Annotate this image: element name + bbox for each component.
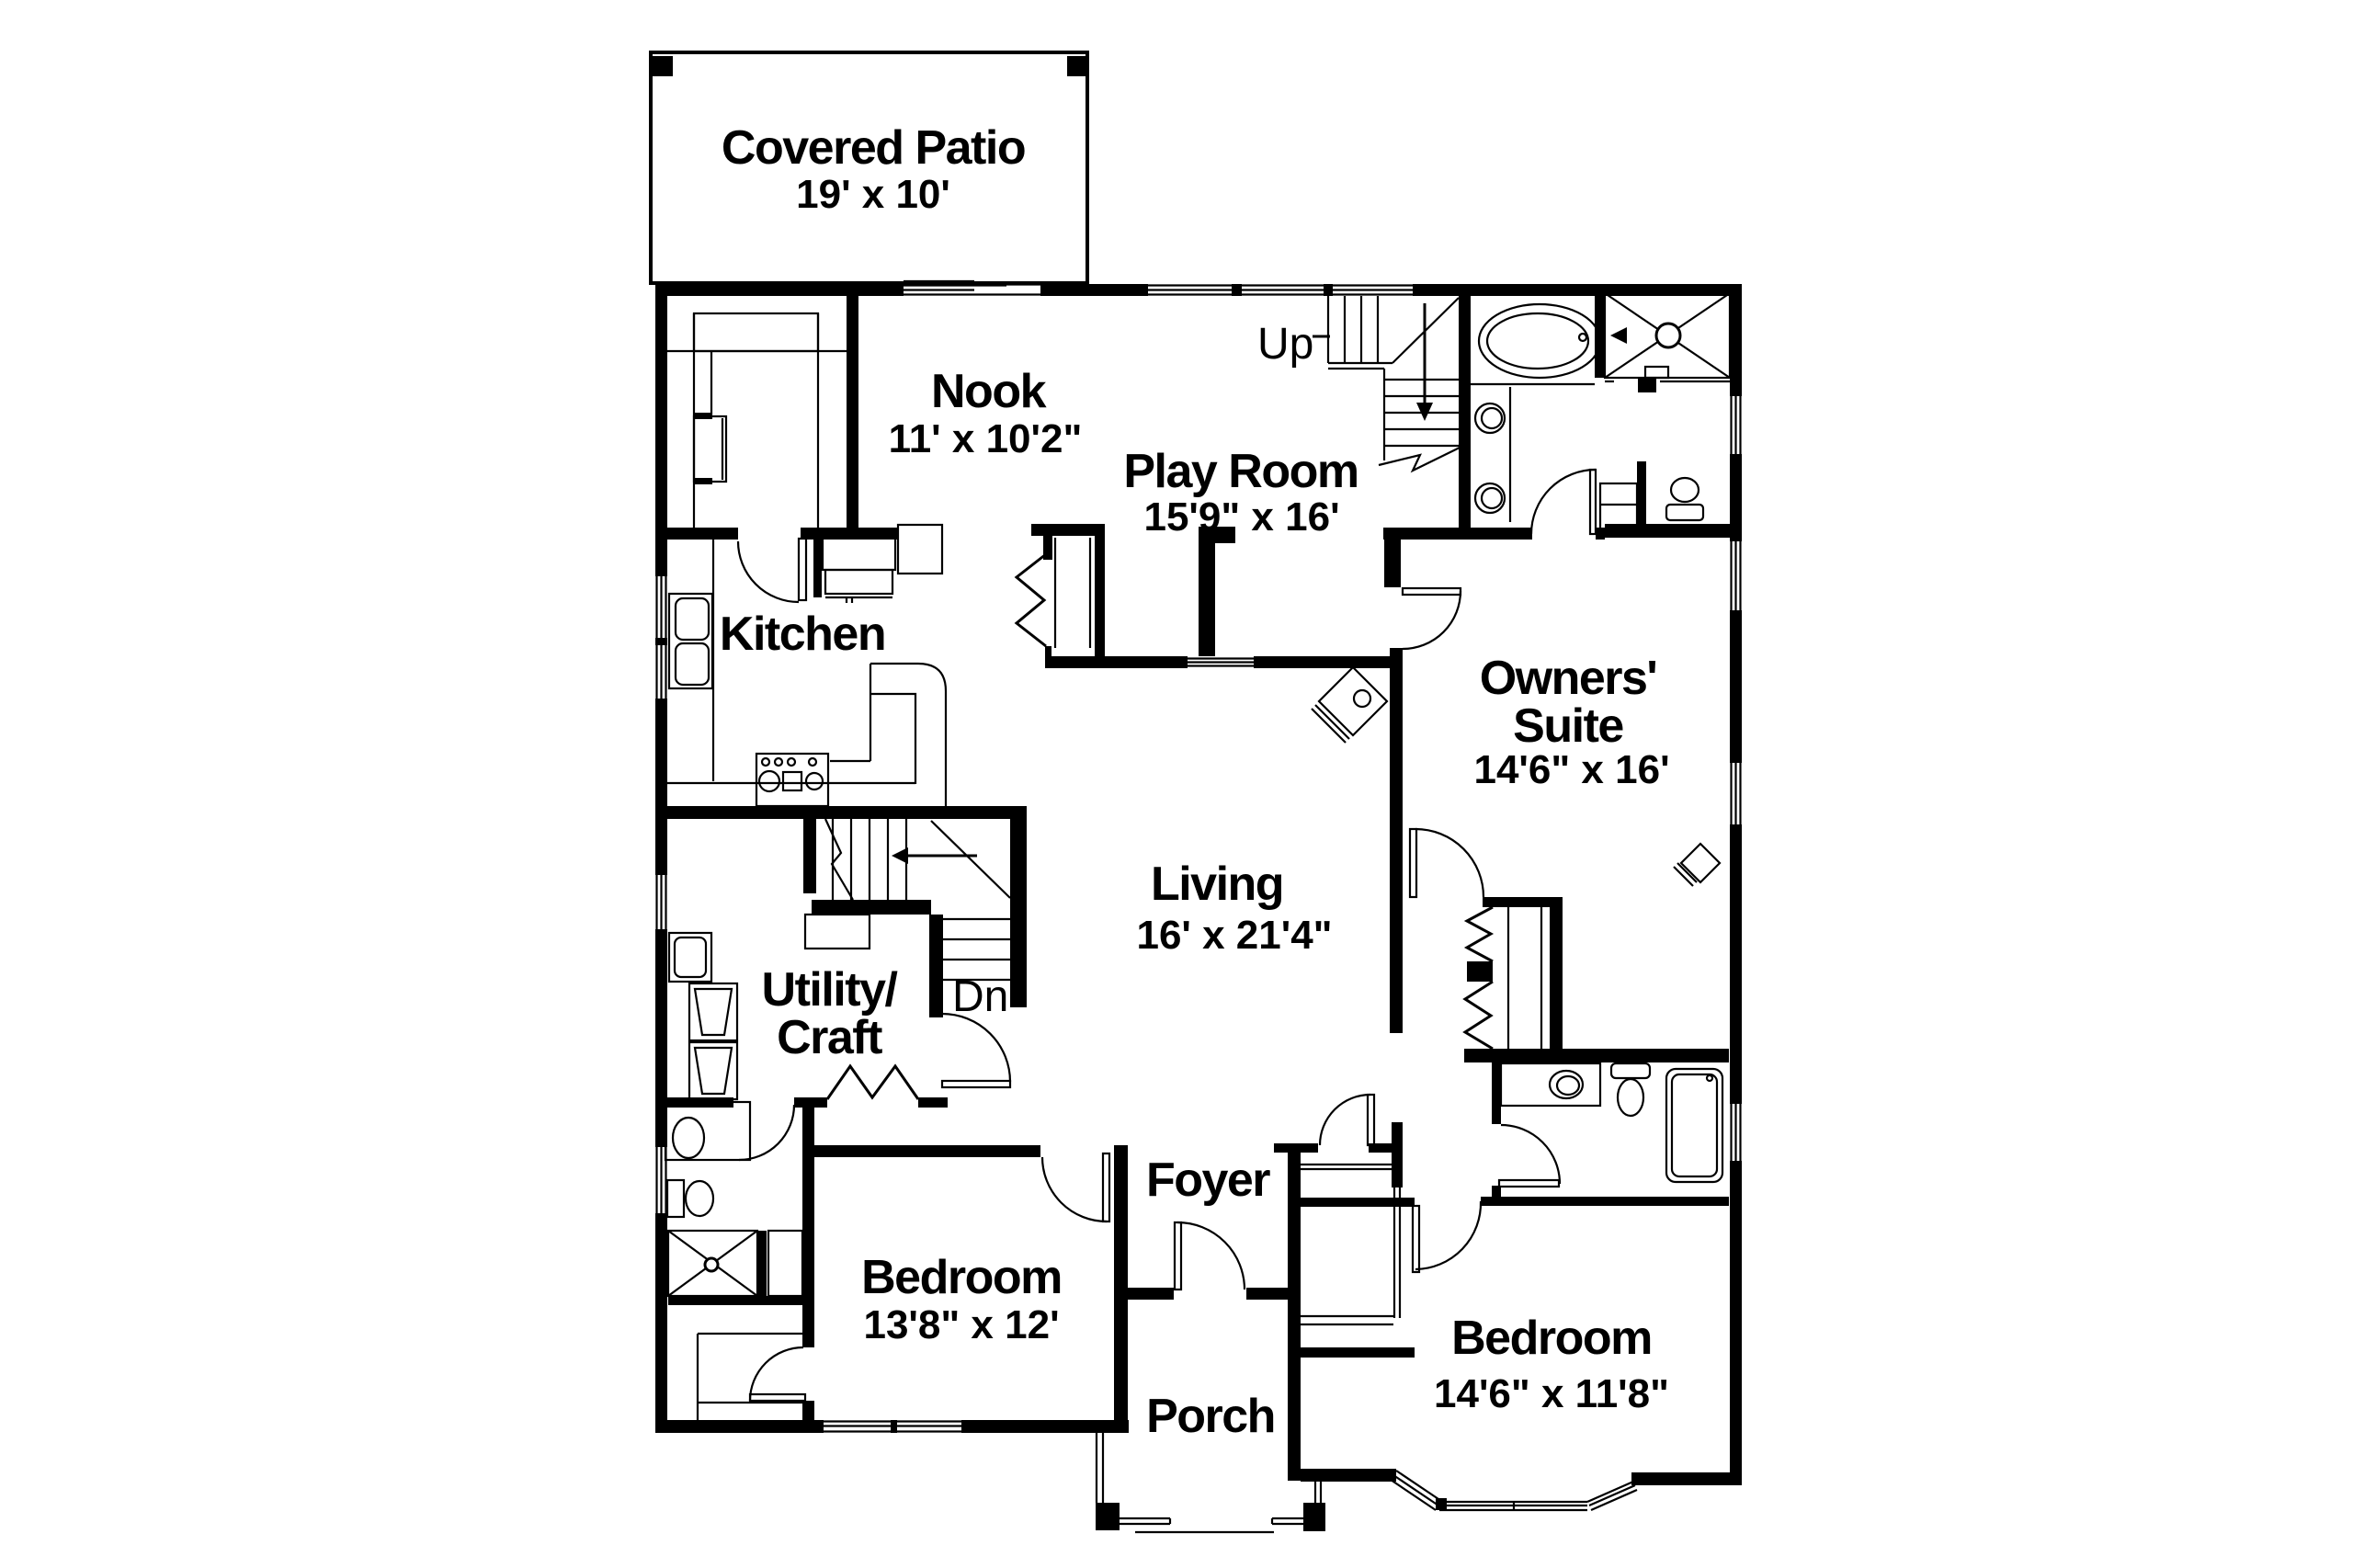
svg-text:Up: Up bbox=[1257, 320, 1313, 369]
svg-text:Nook: Nook bbox=[931, 365, 1047, 418]
svg-text:13'8" x 12': 13'8" x 12' bbox=[863, 1302, 1059, 1347]
svg-text:Covered Patio: Covered Patio bbox=[722, 121, 1025, 175]
svg-text:Utility/: Utility/ bbox=[762, 963, 898, 1017]
svg-text:14'6" x 11'8": 14'6" x 11'8" bbox=[1434, 1371, 1669, 1416]
svg-text:15'9" x 16': 15'9" x 16' bbox=[1143, 494, 1339, 540]
svg-text:Suite: Suite bbox=[1513, 699, 1623, 753]
svg-text:16' x 21'4": 16' x 21'4" bbox=[1136, 913, 1332, 958]
svg-text:Porch: Porch bbox=[1146, 1390, 1275, 1443]
svg-text:Craft: Craft bbox=[777, 1011, 882, 1064]
svg-text:Play Room: Play Room bbox=[1123, 445, 1358, 498]
svg-text:Owners': Owners' bbox=[1480, 652, 1657, 705]
svg-text:Bedroom: Bedroom bbox=[1451, 1312, 1652, 1365]
svg-text:11' x 10'2": 11' x 10'2" bbox=[889, 416, 1083, 461]
svg-text:14'6" x 16': 14'6" x 16' bbox=[1473, 747, 1669, 792]
svg-text:Dn: Dn bbox=[952, 972, 1008, 1021]
svg-text:Living: Living bbox=[1151, 858, 1283, 911]
svg-text:Bedroom: Bedroom bbox=[861, 1251, 1062, 1304]
svg-text:Foyer: Foyer bbox=[1146, 1153, 1270, 1207]
svg-text:19' x 10': 19' x 10' bbox=[796, 172, 950, 217]
svg-text:Kitchen: Kitchen bbox=[720, 608, 885, 661]
